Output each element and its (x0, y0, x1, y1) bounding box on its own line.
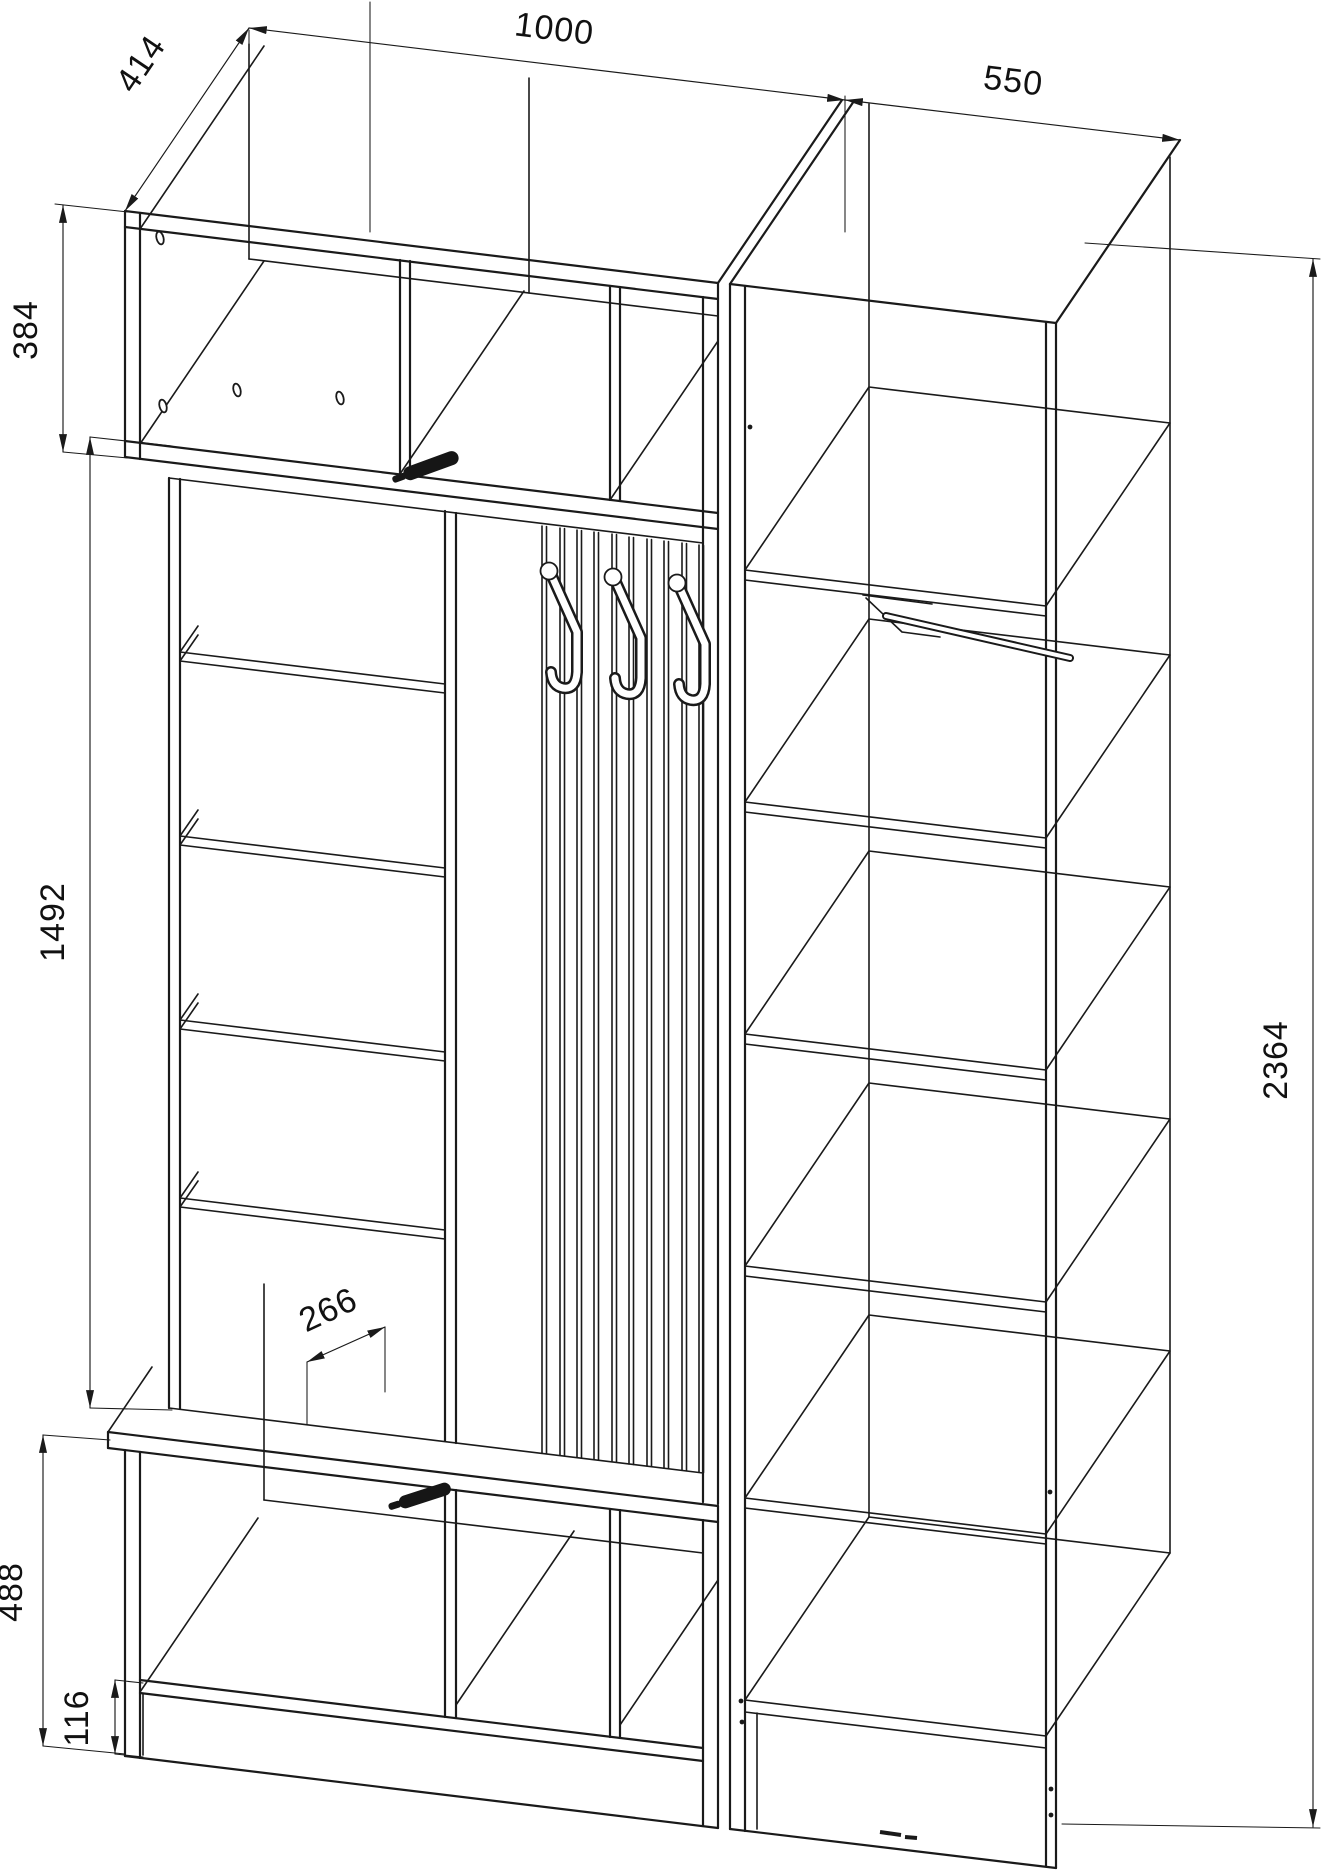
dim-upper-cabinet-height: 384 (7, 300, 45, 360)
dim-lower-shelf-depth: 266 (293, 1280, 363, 1340)
dim-left-width: 1000 (513, 5, 597, 52)
dim-top-depth: 414 (108, 28, 173, 99)
screw-hole-icon (232, 383, 242, 397)
dim-right-width: 550 (981, 59, 1045, 104)
dim-lower-cabinet-height: 488 (0, 1562, 30, 1622)
technical-drawing: 414 1000 550 384 1492 488 116 (0, 0, 1321, 1876)
dim-total-height: 2364 (1257, 1020, 1295, 1100)
right-wardrobe (730, 101, 1180, 1868)
dim-middle-height: 1492 (34, 882, 72, 962)
middle-open-section (169, 478, 705, 1473)
screw-hole-icon (335, 391, 345, 405)
wardrobe-assembly-drawing: 414 1000 550 384 1492 488 116 (0, 0, 1321, 1876)
shelf-column (180, 626, 445, 1239)
slat-panel (542, 526, 704, 1473)
screw-hole-icon (155, 231, 165, 245)
screw-hole-icon (158, 399, 168, 413)
coat-hook-icon (605, 569, 642, 695)
upper-cabinet (125, 44, 842, 1504)
wardrobe-shelves (745, 387, 1170, 1748)
dim-plinth-height: 116 (58, 1689, 96, 1746)
